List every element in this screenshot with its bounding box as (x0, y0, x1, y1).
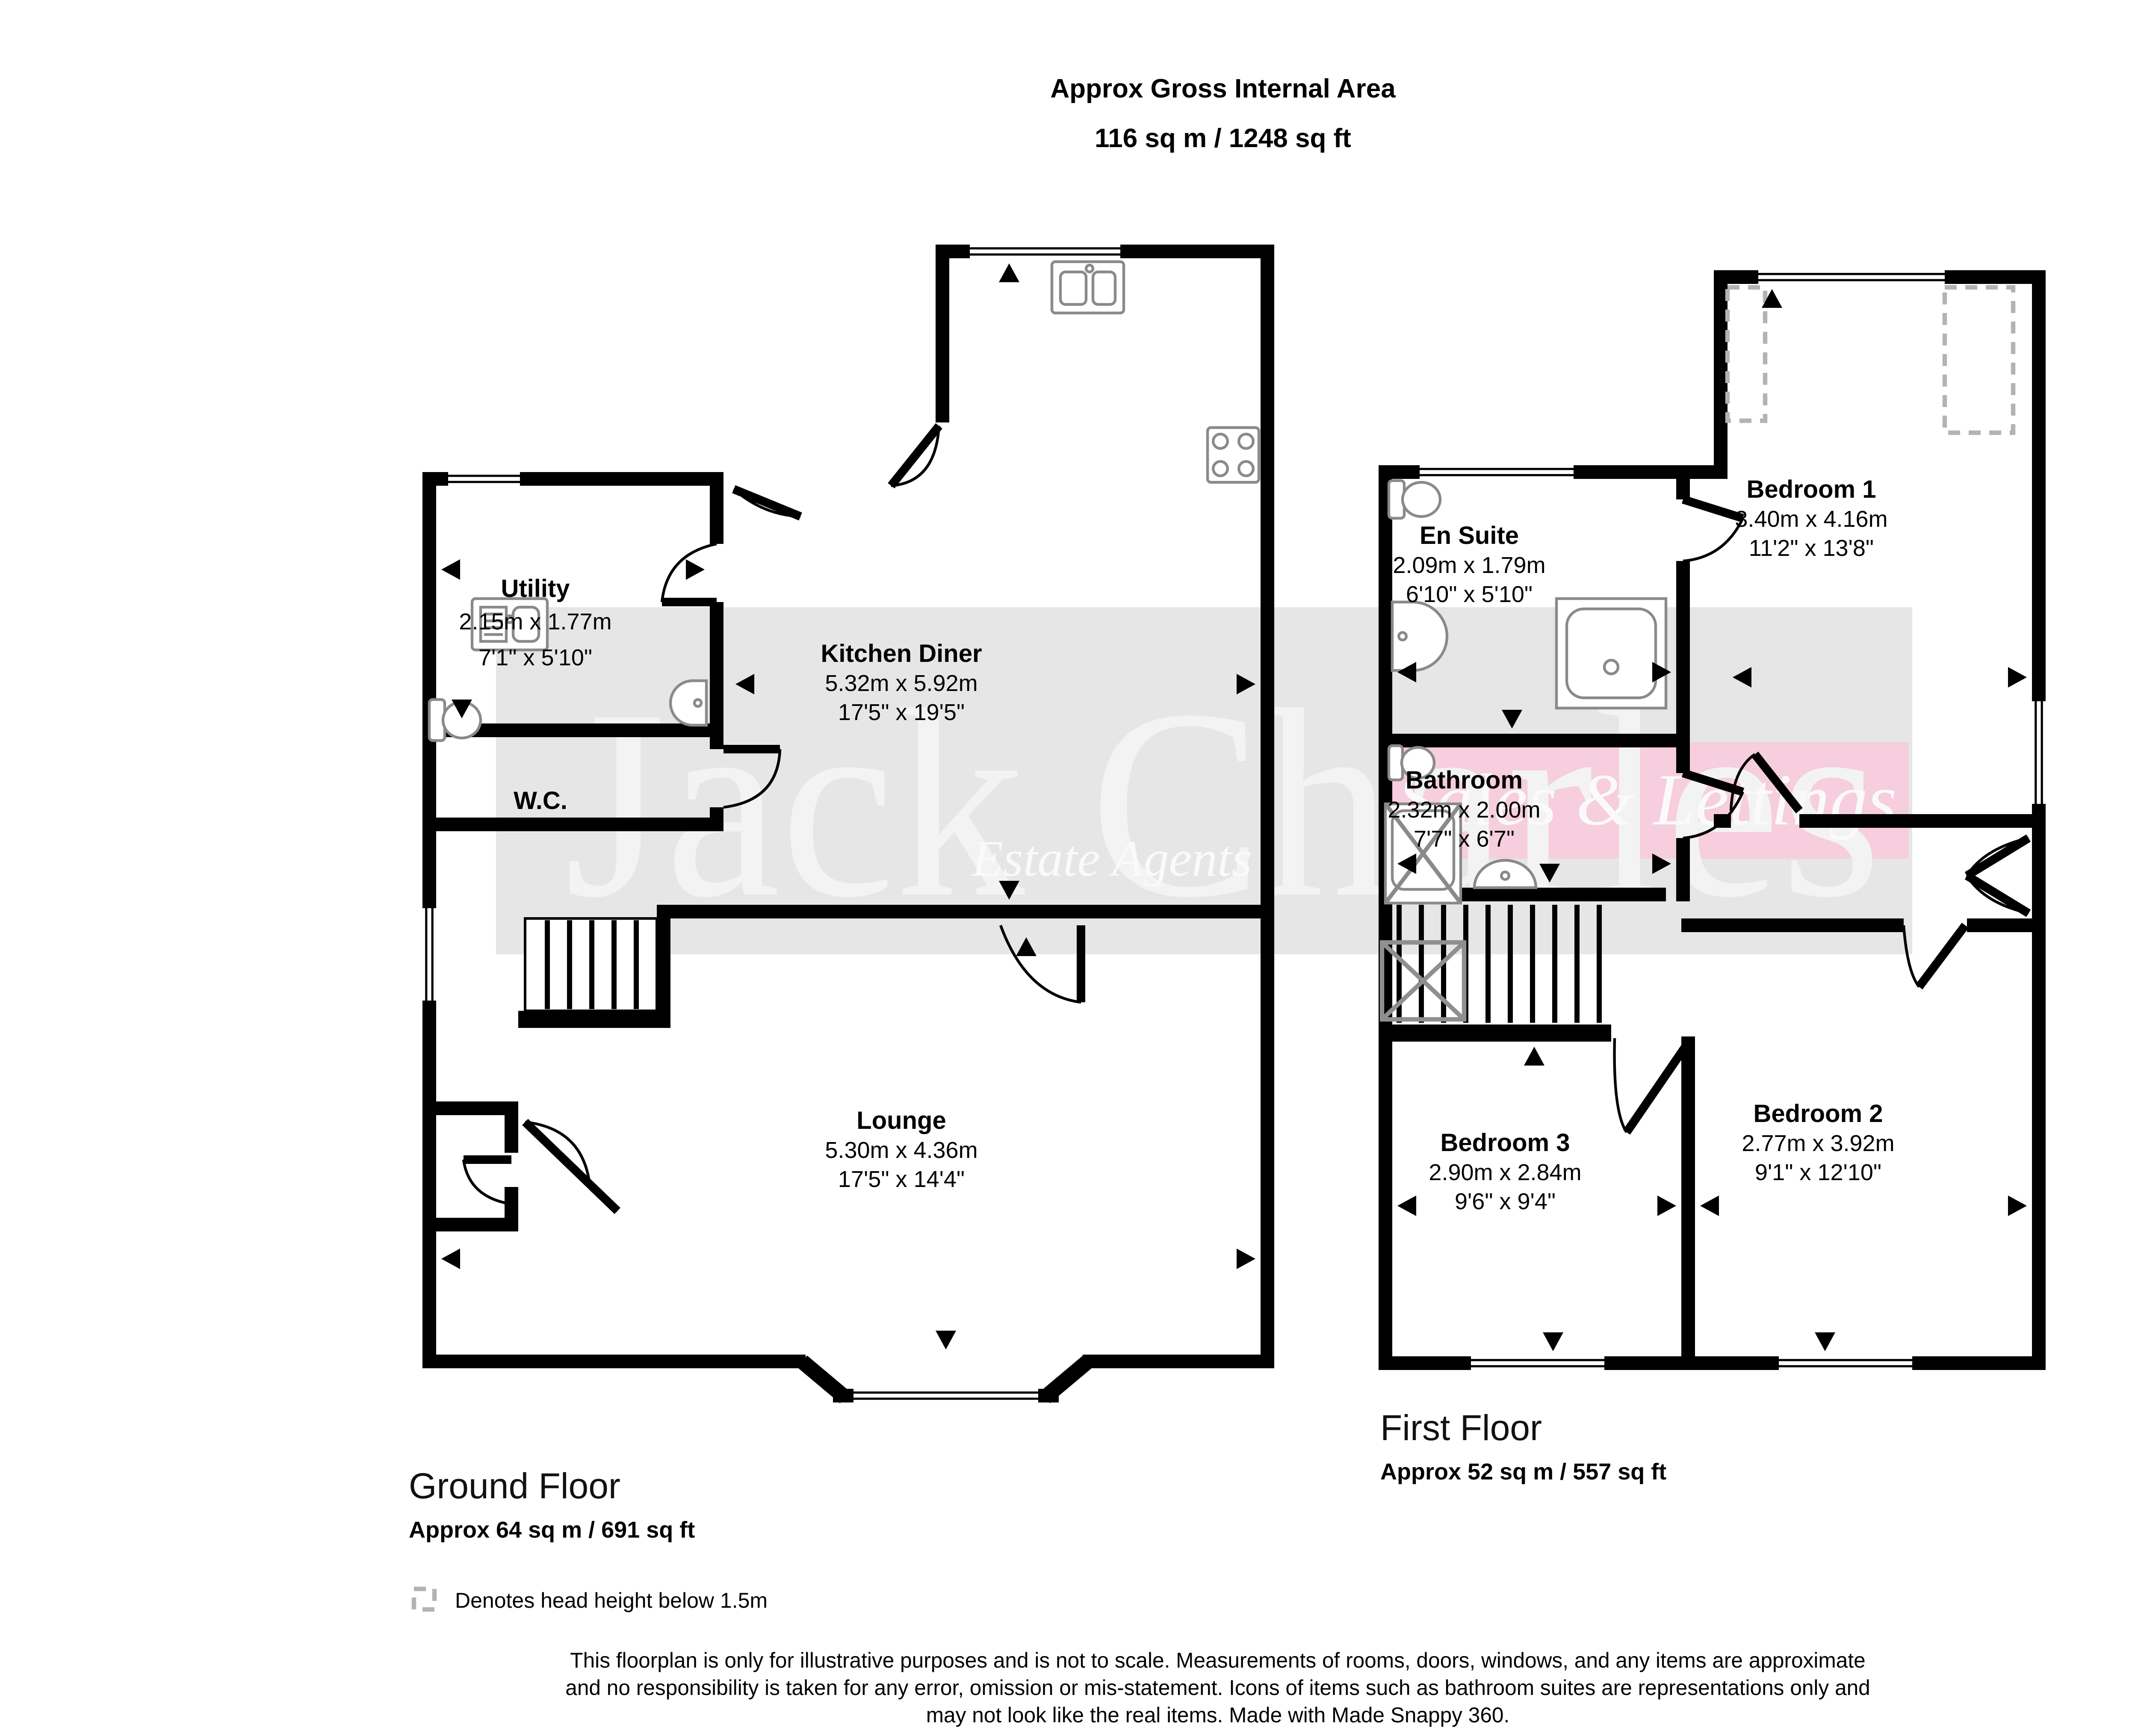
ground-floor-stairs (525, 905, 670, 1014)
utility-metric: 2.15m x 1.77m (459, 609, 611, 635)
kitchen-name: Kitchen Diner (821, 640, 982, 667)
bedroom1-window (1758, 270, 1945, 284)
landing-window (2032, 701, 2046, 804)
hall-window (422, 908, 436, 1001)
bathroom-imperial: 7'7" x 6'7" (1414, 826, 1515, 852)
head-height-legend: Denotes head height below 1.5m (414, 1588, 768, 1612)
ensuite-metric: 2.09m x 1.79m (1393, 552, 1545, 578)
bedroom3-label: Bedroom 3 2.90m x 2.84m 9'6" x 9'4" (1429, 1129, 1581, 1214)
bedroom2-door (1904, 925, 1965, 987)
bedroom2-label: Bedroom 2 2.77m x 3.92m 9'1" x 12'10" (1742, 1100, 1894, 1185)
wc-basin-icon (670, 681, 706, 725)
lounge-name: Lounge (856, 1107, 946, 1134)
kitchen-window (970, 245, 1120, 258)
disclaimer-line2: and no responsibility is taken for any e… (565, 1676, 1870, 1700)
ensuite-door (1683, 499, 1743, 561)
head-height-area-left (1728, 287, 1765, 421)
disclaimer-line1: This floorplan is only for illustrative … (570, 1648, 1865, 1672)
watermark-tagline: Estate Agents (971, 830, 1252, 887)
gross-internal-area-title: Approx Gross Internal Area 116 sq m / 12… (1050, 74, 1396, 153)
kitchen-sink-icon (1052, 262, 1124, 313)
ground-floor-caption: Ground Floor Approx 64 sq m / 691 sq ft (409, 1466, 695, 1543)
bedroom2-window (1779, 1356, 1912, 1370)
lounge-label: Lounge 5.30m x 4.36m 17'5" x 14'4" (825, 1107, 977, 1192)
hob-icon (1208, 428, 1259, 482)
title-line1: Approx Gross Internal Area (1050, 74, 1396, 103)
bedroom2-imperial: 9'1" x 12'10" (1755, 1160, 1881, 1185)
ground-floor-title: Ground Floor (409, 1466, 620, 1506)
bathroom-metric: 2.32m x 2.00m (1388, 797, 1540, 823)
cupboard-doors (1967, 838, 2029, 913)
kitchen-metric: 5.32m x 5.92m (825, 670, 977, 696)
utility-name: Utility (501, 575, 570, 602)
kitchen-diner-label: Kitchen Diner 5.32m x 5.92m 17'5" x 19'5… (821, 640, 982, 725)
utility-imperial: 7'1" x 5'10" (478, 645, 592, 670)
head-height-text: Denotes head height below 1.5m (455, 1588, 768, 1612)
utility-label: Utility 2.15m x 1.77m 7'1" x 5'10" (459, 575, 611, 670)
head-height-area-right (1945, 287, 2013, 433)
bathroom-name: Bathroom (1406, 766, 1523, 794)
kitchen-imperial: 17'5" x 19'5" (838, 700, 965, 725)
ensuite-imperial: 6'10" x 5'10" (1406, 582, 1533, 607)
utility-window (448, 472, 520, 486)
first-floor-area: Approx 52 sq m / 557 sq ft (1380, 1459, 1666, 1485)
first-floor-caption: First Floor Approx 52 sq m / 557 sq ft (1380, 1408, 1666, 1485)
first-floor-title: First Floor (1380, 1408, 1542, 1448)
ensuite-label: En Suite 2.09m x 1.79m 6'10" x 5'10" (1393, 522, 1545, 607)
bedroom1-name: Bedroom 1 (1747, 475, 1876, 503)
head-height-icon (414, 1589, 434, 1609)
lounge-imperial: 17'5" x 14'4" (838, 1166, 965, 1192)
disclaimer: This floorplan is only for illustrative … (565, 1648, 1870, 1727)
wc-name: W.C. (514, 787, 567, 815)
bedroom3-door (1615, 1038, 1686, 1132)
ground-floor-area: Approx 64 sq m / 691 sq ft (409, 1517, 695, 1543)
floorplan-canvas: Approx Gross Internal Area 116 sq m / 12… (0, 0, 2138, 1736)
ensuite-name: En Suite (1420, 522, 1519, 549)
bedroom1-metric: 3.40m x 4.16m (1735, 506, 1887, 532)
front-door (464, 1160, 511, 1204)
bay-window (853, 1389, 1038, 1402)
shower-icon (1556, 599, 1666, 708)
ensuite-window (1420, 465, 1574, 479)
bedroom3-imperial: 9'6" x 9'4" (1455, 1189, 1556, 1214)
lounge-metric: 5.30m x 4.36m (825, 1137, 977, 1163)
bedroom3-name: Bedroom 3 (1441, 1129, 1570, 1157)
title-line2: 116 sq m / 1248 sq ft (1095, 124, 1351, 153)
hall-lounge-double-door (525, 1122, 617, 1211)
ensuite-toilet-icon (1389, 481, 1440, 518)
disclaimer-line3: may not look like the real items. Made w… (926, 1703, 1510, 1727)
bedroom3-metric: 2.90m x 2.84m (1429, 1160, 1581, 1185)
bedroom1-imperial: 11'2" x 13'8" (1749, 535, 1874, 561)
bedroom2-metric: 2.77m x 3.92m (1742, 1131, 1894, 1156)
bedroom1-label: Bedroom 1 3.40m x 4.16m 11'2" x 13'8" (1735, 475, 1887, 561)
bedroom2-name: Bedroom 2 (1754, 1100, 1883, 1128)
kitchen-double-door (734, 426, 939, 517)
ensuite-basin-icon (1392, 602, 1447, 670)
bedroom3-window (1471, 1356, 1604, 1370)
